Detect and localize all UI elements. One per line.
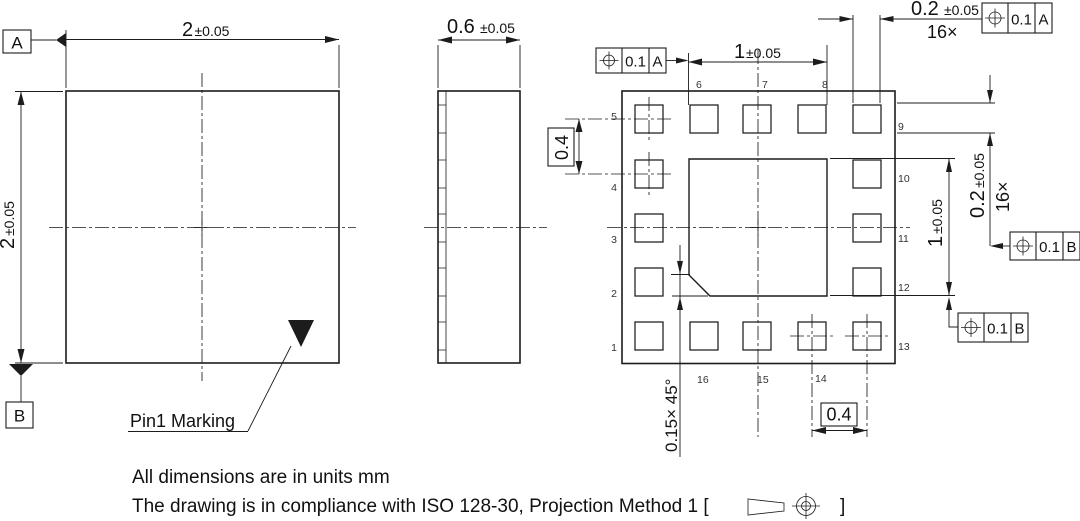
arrowhead-down — [18, 349, 25, 363]
dim-pad-width-value: 0.2 — [911, 0, 939, 20]
dim-epad-tolerance: ±0.05 — [929, 199, 945, 234]
position-tolerance-icon — [961, 318, 981, 337]
fcf-top-left: 0.1 A — [596, 48, 689, 73]
pin-number: 10 — [898, 173, 910, 185]
arrowhead-down — [576, 161, 583, 174]
pad — [690, 105, 718, 133]
position-tolerance-icon — [1013, 237, 1033, 256]
pin-number: 12 — [898, 282, 910, 294]
arrowhead-left — [990, 243, 1003, 249]
fcf-right: 0.1 B — [990, 232, 1080, 260]
arrowhead-up — [946, 297, 952, 310]
pin-number: 14 — [815, 373, 827, 385]
pad — [853, 160, 881, 188]
pad — [853, 105, 881, 133]
note-bracket-close: ] — [840, 496, 845, 517]
arrowhead-right — [676, 58, 689, 64]
pin-numbers: 5 4 3 2 1 6 7 8 9 10 11 12 13 16 15 14 — [611, 79, 910, 386]
arrowhead-left — [880, 16, 894, 22]
pad — [743, 105, 771, 133]
dim-top-tolerance: ±0.05 — [746, 45, 781, 61]
dim-pad-height-tolerance: ±0.05 — [971, 153, 987, 188]
pad — [635, 322, 663, 350]
dim-pad-height-value: 0.2 — [967, 190, 989, 218]
pad — [690, 322, 718, 350]
pad — [635, 268, 663, 296]
position-tolerance-icon — [985, 9, 1005, 28]
drawing-canvas: 2 ±0.05 A 2 ±0.05 B Pin1 Marking — [0, 0, 1080, 521]
projection-method-icon — [748, 493, 820, 519]
side-view: 0.6 ±0.05 — [424, 16, 547, 363]
note-compliance: The drawing is in compliance with ISO 12… — [132, 496, 709, 517]
dim-height-value: 2 — [0, 238, 19, 249]
front-view: 2 ±0.05 A 2 ±0.05 B Pin1 Marking — [0, 19, 356, 432]
fcf-datum: B — [1066, 239, 1076, 256]
pad — [635, 214, 663, 242]
arrowhead-up — [576, 119, 583, 132]
pin-number: 16 — [697, 374, 709, 386]
pin1-leader — [248, 346, 291, 431]
extension-lines — [853, 15, 880, 103]
extension-lines — [897, 103, 995, 133]
pad — [798, 105, 826, 133]
pin-number: 13 — [898, 341, 910, 353]
arrowhead-right — [853, 427, 867, 434]
dim-width-tolerance: ±0.05 — [195, 23, 230, 39]
center-cross — [194, 220, 210, 236]
dim-thickness-value: 0.6 — [447, 16, 475, 38]
pitch-left-value: 0.4 — [552, 135, 572, 160]
arrowhead-right — [325, 36, 339, 43]
package-outline-drawing: 2 ±0.05 A 2 ±0.05 B Pin1 Marking — [0, 0, 1080, 521]
datum-a-label: A — [11, 34, 23, 53]
pin-number: 6 — [696, 79, 702, 91]
dim-pad-width-tolerance: ±0.05 — [944, 2, 979, 18]
arrowhead-up — [987, 133, 993, 146]
side-outline — [438, 91, 520, 363]
fcf-bottom: 0.1 B — [946, 297, 1028, 342]
dim-thickness-tolerance: ±0.05 — [480, 20, 515, 36]
pin1-label: Pin1 Marking — [130, 411, 235, 431]
dim-top-value: 1 — [734, 41, 745, 63]
pin-number: 4 — [611, 182, 617, 194]
arrowhead-left — [689, 59, 703, 66]
extension-lines — [438, 45, 520, 88]
fcf-datum: A — [652, 54, 662, 71]
pad-count-right: 16× — [993, 181, 1013, 212]
arrowhead-up — [18, 92, 25, 106]
datum-b-label: B — [14, 407, 25, 426]
pin-number: 3 — [611, 234, 617, 246]
arrowhead-up — [677, 297, 683, 310]
note-units: All dimensions are in units mm — [132, 467, 390, 488]
dim-height-tolerance: ±0.05 — [1, 201, 17, 236]
center-cross — [750, 220, 766, 236]
pin-number: 8 — [822, 79, 828, 91]
datum-a-triangle-icon — [56, 33, 66, 47]
arrowhead-right — [506, 37, 520, 44]
chamfer-extension-lines — [671, 275, 708, 297]
arrowhead-up — [946, 159, 952, 173]
chamfer-label: 0.15× 45° — [662, 379, 681, 452]
pin-number: 1 — [611, 342, 617, 354]
fcf-tolerance: 0.1 — [1039, 239, 1060, 256]
fcf-top-right: 0.1 A — [982, 3, 1052, 33]
arrowhead-right — [840, 16, 854, 22]
fcf-datum: A — [1038, 12, 1048, 29]
pin-number: 11 — [898, 233, 909, 245]
pad — [743, 322, 771, 350]
position-tolerance-icon — [600, 52, 619, 70]
dim-epad-value: 1 — [925, 236, 947, 247]
pin-number: 15 — [757, 374, 769, 386]
fcf-tolerance: 0.1 — [987, 321, 1008, 338]
notes: All dimensions are in units mm The drawi… — [132, 467, 845, 519]
pin-number: 9 — [898, 121, 904, 133]
fcf-datum: B — [1014, 321, 1024, 338]
bottom-view: 1 ±0.05 0.1 A 0.2 ±0.05 16× — [548, 0, 1080, 457]
arrowhead-down — [677, 261, 683, 274]
fcf-leader — [949, 309, 958, 327]
pin-number: 2 — [611, 288, 617, 300]
datum-b-triangle-icon — [9, 364, 33, 376]
dim-width-value: 2 — [182, 19, 193, 41]
pad-count-top: 16× — [927, 22, 958, 42]
arrowhead-down — [946, 282, 952, 296]
pitch-bottom-value: 0.4 — [826, 405, 851, 425]
fcf-tolerance: 0.1 — [625, 54, 646, 71]
arrowhead-right — [813, 59, 827, 66]
pin-number: 7 — [762, 79, 768, 91]
arrowhead-left — [812, 427, 826, 434]
arrowhead-down — [987, 90, 993, 103]
pin-number: 5 — [611, 111, 617, 123]
pad — [853, 214, 881, 242]
pad — [853, 268, 881, 296]
pin1-marking-icon — [288, 320, 314, 347]
fcf-tolerance: 0.1 — [1011, 12, 1032, 29]
